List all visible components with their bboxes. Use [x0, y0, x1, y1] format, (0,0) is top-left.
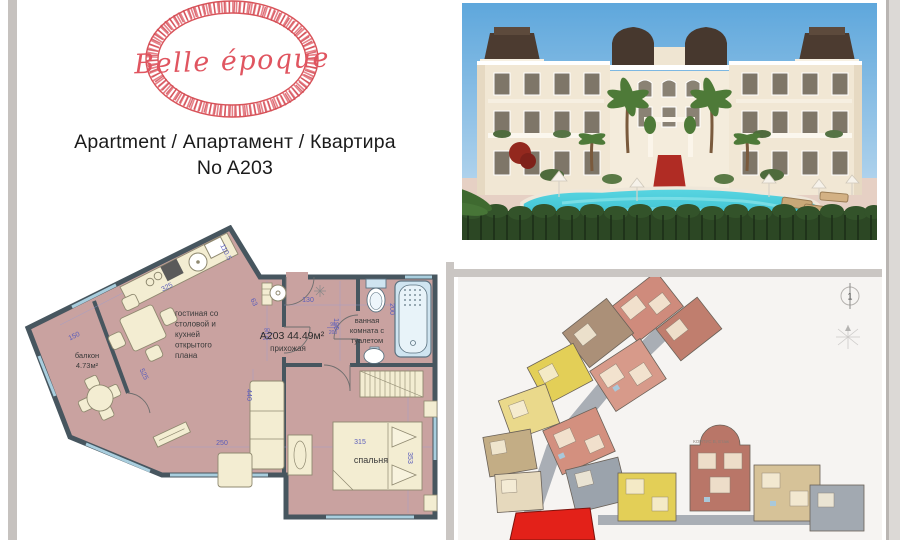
svg-text:200: 200 [329, 330, 338, 336]
dim-315: 315 [354, 439, 366, 446]
svg-text:балкон: балкон [75, 351, 99, 360]
listing-collage: Belle époque Apartment / Апартамент / Кв… [0, 0, 900, 540]
svg-text:ванная: ванная [355, 316, 380, 325]
svg-text:туалетом: туалетом [351, 336, 383, 345]
bedroom-label: спальня [354, 455, 388, 465]
floor-overview-plan: КОРПУС В, Етаж 1 [458, 277, 882, 540]
svg-text:гостиная со: гостиная со [175, 309, 219, 318]
left-frame-strip [8, 0, 17, 540]
dim-250: 250 [216, 440, 228, 447]
bathroom-label: ванная комната с туалетом [350, 316, 384, 345]
hallway-label: прихожая [270, 344, 306, 353]
svg-text:4.73м²: 4.73м² [76, 361, 99, 370]
svg-text:1: 1 [847, 292, 852, 302]
dim-130: 130 [302, 297, 314, 304]
svg-text:90: 90 [330, 322, 336, 328]
unit-area-label: A203 44.49м² [260, 330, 325, 342]
balcony-label: балкон 4.73м² [75, 351, 99, 370]
toilet-icon [366, 279, 386, 288]
siteplan-panel: КОРПУС В, Етаж 1 [458, 277, 882, 540]
highlighted-unit-a203 [510, 508, 595, 540]
entrance-opening [286, 272, 308, 282]
svg-text:открытого: открытого [175, 341, 212, 350]
svg-text:плана: плана [175, 351, 198, 360]
block-label: КОРПУС В, Етаж [693, 439, 729, 444]
right-frame-strip [886, 0, 900, 540]
red-carpet [653, 155, 686, 189]
panel-divider-horizontal [446, 269, 882, 277]
svg-text:кухней: кухней [175, 330, 200, 339]
svg-text:столовой и: столовой и [175, 320, 216, 329]
dim-440: 440 [245, 389, 252, 401]
apartment-floorplan: 325 110.5 150 525 63 130 200 190 440 250… [20, 225, 450, 540]
svg-text:комната с: комната с [350, 326, 384, 335]
washer-icon [270, 285, 286, 301]
brand-logo: Belle époque [20, 0, 450, 130]
logo-panel: Belle époque Apartment / Апартамент / Кв… [20, 0, 450, 225]
wind-rose-icon [836, 325, 860, 349]
building-render-photo [462, 3, 877, 240]
north-arrow-icon: 1 [841, 283, 859, 309]
dim-353: 353 [406, 452, 413, 464]
brand-script-text: Belle époque [133, 43, 331, 81]
unit-number: No A203 [20, 157, 450, 180]
listing-title: Apartment / Апартамент / Квартира [20, 131, 450, 154]
dim-200: 200 [388, 303, 395, 315]
